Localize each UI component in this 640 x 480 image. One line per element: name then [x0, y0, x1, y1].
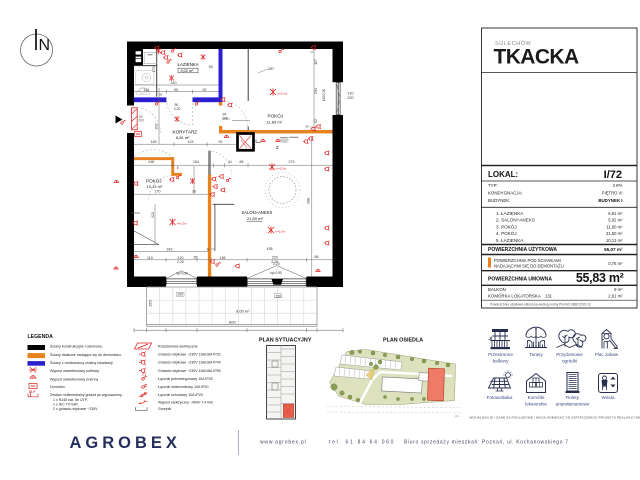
svg-text:110: 110 — [144, 88, 150, 92]
svg-text:h=2,5m: h=2,5m — [277, 167, 287, 171]
svg-text:1 x RJ45 kat. 5e UTP,: 1 x RJ45 kat. 5e UTP, — [53, 398, 88, 402]
svg-text:66: 66 — [315, 255, 319, 259]
svg-text:N: N — [39, 37, 51, 54]
svg-text:NADAJĄCYMI SIĘ DO DEMONTAŻU: NADAJĄCYMI SIĘ DO DEMONTAŻU — [494, 264, 564, 269]
svg-text:Fotowoltaika: Fotowoltaika — [487, 395, 513, 400]
svg-text:Ściany z możliwością zmiany lo: Ściany z możliwością zmiany lokalizacji — [50, 360, 113, 365]
svg-text:0,76 m²: 0,76 m² — [608, 261, 623, 266]
svg-text:10,13 m²: 10,13 m² — [147, 184, 163, 189]
svg-text:10,13 m²: 10,13 m² — [606, 238, 623, 243]
svg-text:Przestronne: Przestronne — [488, 352, 513, 357]
svg-text:5,02 m²: 5,02 m² — [181, 69, 195, 73]
svg-text:hp=0,90: hp=0,90 — [176, 272, 188, 276]
svg-text:Wypust elektryczny ~400V 7,4 k: Wypust elektryczny ~400V 7,4 kW, — [158, 401, 213, 405]
svg-text:170: 170 — [155, 190, 161, 194]
svg-text:55,07 m²: 55,07 m² — [604, 247, 623, 252]
svg-text:Przydomowe: Przydomowe — [556, 352, 583, 357]
svg-text:KONDYGNACJA:: KONDYGNACJA: — [488, 191, 523, 196]
svg-text:Łącznik świecznikowy 10A IP20: Łącznik świecznikowy 10A IP20 — [158, 385, 209, 389]
svg-text:Wypust oświetleniowy ścienny: Wypust oświetleniowy ścienny — [50, 377, 99, 381]
svg-text:5,02 m²: 5,02 m² — [608, 218, 623, 223]
svg-text:5. ŁAZIENKA: 5. ŁAZIENKA — [496, 238, 524, 243]
svg-text:423: 423 — [151, 212, 155, 218]
svg-text:KOMÓRKA LOKATORSKA: KOMÓRKA LOKATORSKA — [488, 294, 541, 299]
svg-text:438: 438 — [267, 247, 273, 251]
svg-text:308: 308 — [307, 198, 311, 204]
svg-text:150/2,20: 150/2,20 — [322, 89, 326, 102]
svg-text:Komórki: Komórki — [528, 395, 545, 400]
svg-text:90: 90 — [174, 88, 178, 92]
svg-text:2. SALON+ANEKS: 2. SALON+ANEKS — [496, 218, 535, 223]
svg-text:3. POKÓJ: 3. POKÓJ — [496, 223, 517, 229]
svg-text:41: 41 — [228, 160, 232, 164]
svg-text:11,60 m²: 11,60 m² — [606, 224, 623, 229]
svg-text:Biuro sprzedaży mieszkań: Pozn: Biuro sprzedaży mieszkań: Poznań, ul. Ko… — [404, 440, 569, 446]
svg-text:52: 52 — [314, 119, 318, 123]
svg-text:KORYTARZ: KORYTARZ — [173, 130, 198, 135]
svg-text:1 x IEC TV-SAT,: 1 x IEC TV-SAT, — [53, 403, 79, 407]
svg-text:243: 243 — [167, 247, 173, 251]
svg-text:123: 123 — [188, 140, 194, 144]
svg-text:208: 208 — [222, 116, 228, 120]
svg-text:Wypust oświetleniowy sufitowy: Wypust oświetleniowy sufitowy — [50, 369, 99, 373]
svg-text:203: 203 — [155, 124, 159, 130]
svg-text:9,00 m²: 9,00 m² — [236, 309, 250, 314]
svg-text:Rolety: Rolety — [566, 395, 580, 400]
svg-text:h=2,5m: h=2,5m — [278, 92, 288, 96]
svg-text:2,20: 2,20 — [273, 262, 280, 266]
svg-text:tel. 61 84 64 060: tel. 61 84 64 060 — [329, 440, 395, 446]
svg-text:92: 92 — [203, 88, 207, 92]
svg-text:279: 279 — [289, 160, 295, 164]
svg-text:55,83 m²: 55,83 m² — [576, 271, 624, 285]
svg-text:4. POKÓJ: 4. POKÓJ — [496, 230, 517, 236]
svg-text:150: 150 — [148, 300, 153, 307]
svg-text:110: 110 — [147, 256, 153, 260]
svg-text:Grzejnik: Grzejnik — [158, 407, 171, 411]
svg-text:ŁAZIENKA: ŁAZIENKA — [178, 62, 199, 67]
svg-text:21,50 m²: 21,50 m² — [606, 231, 623, 236]
svg-text:21,50 m²: 21,50 m² — [247, 216, 263, 221]
svg-text:Ściany działowe nadające się d: Ściany działowe nadające się do demontaż… — [50, 352, 122, 357]
svg-text:hp=0,90: hp=0,90 — [270, 271, 282, 275]
svg-text:Gniazdo wtykowe ~230V 16A/16A: Gniazdo wtykowe ~230V 16A/16A IP55 — [158, 369, 221, 373]
svg-text:120: 120 — [348, 92, 354, 96]
svg-text:lokatorskie: lokatorskie — [525, 402, 547, 407]
svg-text:Domofon: Domofon — [50, 385, 65, 389]
svg-text:294: 294 — [314, 88, 318, 94]
svg-text:92: 92 — [219, 140, 223, 144]
svg-text:Plac zabaw: Plac zabaw — [595, 352, 619, 357]
svg-text:136: 136 — [220, 256, 226, 260]
svg-text:2 x gniazdo wtykowe ~230V: 2 x gniazdo wtykowe ~230V — [53, 407, 98, 411]
svg-text:Ściany konstrukcyjne i osłonow: Ściany konstrukcyjne i osłonowe, — [50, 344, 103, 349]
svg-text:h=2,5m: h=2,5m — [177, 222, 187, 226]
svg-text:8: 8 — [207, 247, 209, 251]
svg-text:220: 220 — [348, 96, 354, 100]
svg-text:154: 154 — [193, 160, 199, 164]
svg-text:9 m²: 9 m² — [614, 287, 623, 292]
svg-text:ogródki: ogródki — [562, 359, 577, 364]
svg-text:310: 310 — [171, 81, 177, 85]
svg-text:LEGENDA: LEGENDA — [28, 334, 54, 340]
svg-text:POKÓJ: POKÓJ — [268, 113, 284, 119]
svg-text:Tarasy: Tarasy — [529, 352, 543, 357]
svg-text:Łącznik schodowy 10A IP20: Łącznik schodowy 10A IP20 — [158, 393, 203, 397]
svg-text:POKÓJ: POKÓJ — [146, 177, 162, 183]
svg-text:LOKAL:: LOKAL: — [488, 170, 518, 179]
svg-text:175: 175 — [152, 67, 156, 73]
svg-text:Gniazdo wtykowe ~230V 16A/16A: Gniazdo wtykowe ~230V 16A/16A IP44 — [158, 361, 221, 365]
svg-text:TKACKA: TKACKA — [494, 45, 579, 68]
svg-text:BUDYNEK:: BUDYNEK: — [488, 198, 510, 203]
svg-text:220: 220 — [272, 255, 278, 259]
svg-text:397: 397 — [268, 67, 274, 71]
svg-text:2,20: 2,20 — [177, 260, 184, 264]
svg-text:200: 200 — [139, 119, 145, 123]
svg-text:2,61 m²: 2,61 m² — [608, 294, 623, 299]
svg-text:antywłamaniowe: antywłamaniowe — [556, 402, 590, 407]
svg-text:Z: Z — [276, 145, 279, 150]
svg-text:150: 150 — [177, 293, 183, 297]
svg-text:PLAN OSIEDLA: PLAN OSIEDLA — [383, 338, 423, 344]
svg-text:Gniazdo wtykowe ~230V 16A/16A: Gniazdo wtykowe ~230V 16A/16A IP20 — [158, 353, 221, 357]
svg-text:Winda: Winda — [601, 395, 614, 400]
svg-text:60: 60 — [306, 125, 310, 129]
svg-text:SALON+ANEKS: SALON+ANEKS — [242, 210, 273, 215]
svg-text:Łącznik jednobiegunowy 10A IP2: Łącznik jednobiegunowy 10A IP20 — [158, 377, 213, 381]
svg-text:BUDYNEK I: BUDYNEK I — [598, 198, 622, 203]
svg-text:PLAN SYTUACYJNY: PLAN SYTUACYJNY — [259, 338, 312, 344]
svg-text:Powierzchnia użytkowa obliczon: Powierzchnia użytkowa obliczona według n… — [490, 303, 591, 307]
svg-text:BALKON: BALKON — [488, 287, 506, 292]
svg-text:POWIERZCHNIA POD ŚCIANKAMI: POWIERZCHNIA POD ŚCIANKAMI — [494, 258, 561, 263]
svg-text:8: 8 — [177, 166, 179, 170]
svg-text:Zestaw multimedialny gniazd pk: Zestaw multimedialny gniazd pk wyposażon… — [50, 393, 123, 397]
svg-text:I/72: I/72 — [604, 169, 622, 181]
svg-text:6,81 m²: 6,81 m² — [608, 211, 623, 216]
svg-text:PIĘTRO VI: PIĘTRO VI — [602, 191, 623, 196]
svg-text:50: 50 — [209, 65, 213, 69]
svg-text:131: 131 — [545, 294, 553, 299]
svg-text:WIZUALIZACJE I DANE SĄ POGLĄDO: WIZUALIZACJE I DANE SĄ POGLĄDOWE I MOGĄ … — [469, 415, 640, 420]
svg-text:POWIERZCHNIA UŻYTKOWA: POWIERZCHNIA UŻYTKOWA — [488, 246, 557, 253]
svg-text:20: 20 — [159, 93, 163, 97]
svg-text:3 IPA: 3 IPA — [613, 183, 623, 188]
svg-text:h=2,5m: h=2,5m — [276, 230, 286, 234]
svg-text:AGROBEX: AGROBEX — [70, 434, 181, 452]
svg-text:66: 66 — [240, 160, 244, 164]
svg-text:11,60 m²: 11,60 m² — [267, 120, 283, 125]
svg-text:600: 600 — [229, 319, 236, 324]
svg-text:Rozdzielnica elektryczna: Rozdzielnica elektryczna — [158, 345, 198, 349]
svg-text:www.agrobex.pl: www.agrobex.pl — [260, 440, 307, 446]
svg-text:36: 36 — [192, 189, 196, 193]
svg-text:117: 117 — [314, 59, 318, 65]
svg-text:POWIERZCHNIA UMOWNA: POWIERZCHNIA UMOWNA — [488, 277, 552, 283]
svg-text:1. ŁAZIENKA: 1. ŁAZIENKA — [496, 211, 524, 216]
svg-text:UL. ...: UL. ... — [455, 414, 462, 418]
svg-text:2,20: 2,20 — [174, 107, 181, 111]
svg-text:balkony: balkony — [493, 359, 510, 364]
svg-text:35: 35 — [194, 255, 198, 259]
svg-text:148: 148 — [151, 140, 157, 144]
svg-text:148: 148 — [148, 160, 154, 164]
svg-text:TYP:: TYP: — [488, 183, 498, 188]
